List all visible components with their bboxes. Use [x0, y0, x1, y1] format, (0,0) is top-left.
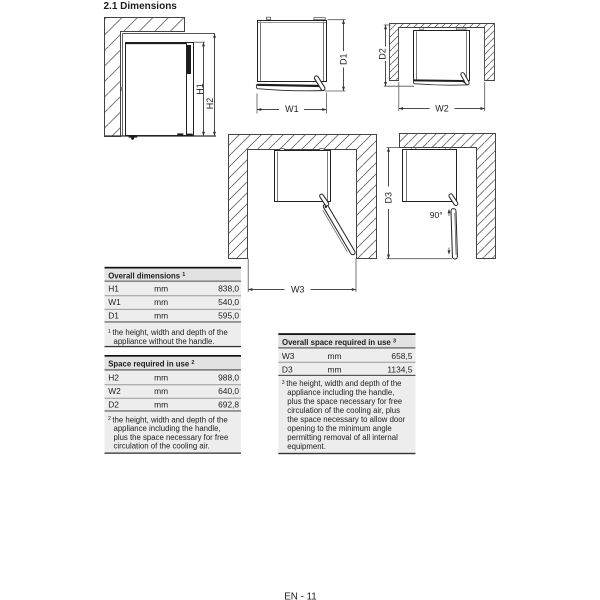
svg-text:988,0: 988,0 [218, 373, 239, 383]
svg-text:658,5: 658,5 [391, 351, 412, 361]
svg-text:H2: H2 [205, 98, 215, 110]
svg-text:H2: H2 [108, 373, 119, 383]
svg-text:W1: W1 [108, 297, 121, 307]
svg-text:Overall space required in use: Overall space required in use 3 [282, 338, 396, 347]
svg-text:D1: D1 [108, 311, 119, 321]
svg-text:D1: D1 [338, 54, 348, 66]
svg-text:1the height, width and depth o: 1the height, width and depth of the [108, 328, 228, 337]
svg-text:838,0: 838,0 [218, 284, 239, 294]
svg-text:the space necessary to allow d: the space necessary to allow door [287, 415, 405, 424]
svg-text:W1: W1 [285, 104, 299, 114]
svg-text:90°: 90° [430, 210, 443, 220]
svg-text:H1: H1 [108, 284, 119, 294]
svg-text:H1: H1 [195, 83, 205, 95]
svg-text:permitting removal of all inte: permitting removal of all internal [287, 433, 398, 442]
svg-text:circulation of the cooling air: circulation of the cooling air. [114, 442, 210, 451]
svg-text:W3: W3 [282, 351, 295, 361]
svg-text:appliance including the handle: appliance including the handle, [287, 388, 394, 397]
svg-text:circulation of the cooling air: circulation of the cooling air, plus [287, 406, 400, 415]
svg-text:EN - 11: EN - 11 [284, 591, 317, 600]
svg-text:mm: mm [154, 311, 168, 321]
svg-text:2the height, width and depth o: 2the height, width and depth of the [108, 415, 228, 424]
svg-text:D2: D2 [378, 48, 388, 60]
svg-text:mm: mm [154, 386, 168, 396]
svg-text:mm: mm [154, 297, 168, 307]
svg-text:692,8: 692,8 [218, 400, 239, 410]
svg-text:D2: D2 [108, 400, 119, 410]
svg-text:D3: D3 [383, 192, 393, 204]
svg-text:2.1 Dimensions: 2.1 Dimensions [104, 1, 178, 12]
svg-text:equipment.: equipment. [287, 442, 326, 451]
svg-text:mm: mm [328, 351, 342, 361]
svg-text:mm: mm [154, 284, 168, 294]
svg-text:Space required in use 2: Space required in use 2 [108, 360, 194, 369]
svg-text:mm: mm [154, 373, 168, 383]
svg-text:W2: W2 [435, 104, 449, 114]
svg-text:D3: D3 [282, 364, 293, 374]
svg-text:540,0: 540,0 [218, 297, 239, 307]
svg-text:640,0: 640,0 [218, 386, 239, 396]
svg-text:W3: W3 [291, 285, 305, 295]
svg-text:appliance including the handle: appliance including the handle, [114, 424, 221, 433]
svg-text:W2: W2 [108, 386, 121, 396]
svg-text:plus the space necessary for f: plus the space necessary for free [287, 397, 402, 406]
svg-text:595,0: 595,0 [218, 311, 239, 321]
svg-text:plus the space necessary for f: plus the space necessary for free [114, 433, 229, 442]
svg-text:mm: mm [328, 364, 342, 374]
svg-text:mm: mm [154, 400, 168, 410]
svg-text:1134,5: 1134,5 [387, 364, 412, 374]
svg-text:3the height, width and depth o: 3the height, width and depth of the [282, 379, 402, 388]
svg-text:appliance without the handle.: appliance without the handle. [114, 337, 215, 346]
svg-text:Overall dimensions 1: Overall dimensions 1 [108, 271, 185, 280]
svg-text:opening to the minimum angle: opening to the minimum angle [287, 424, 391, 433]
